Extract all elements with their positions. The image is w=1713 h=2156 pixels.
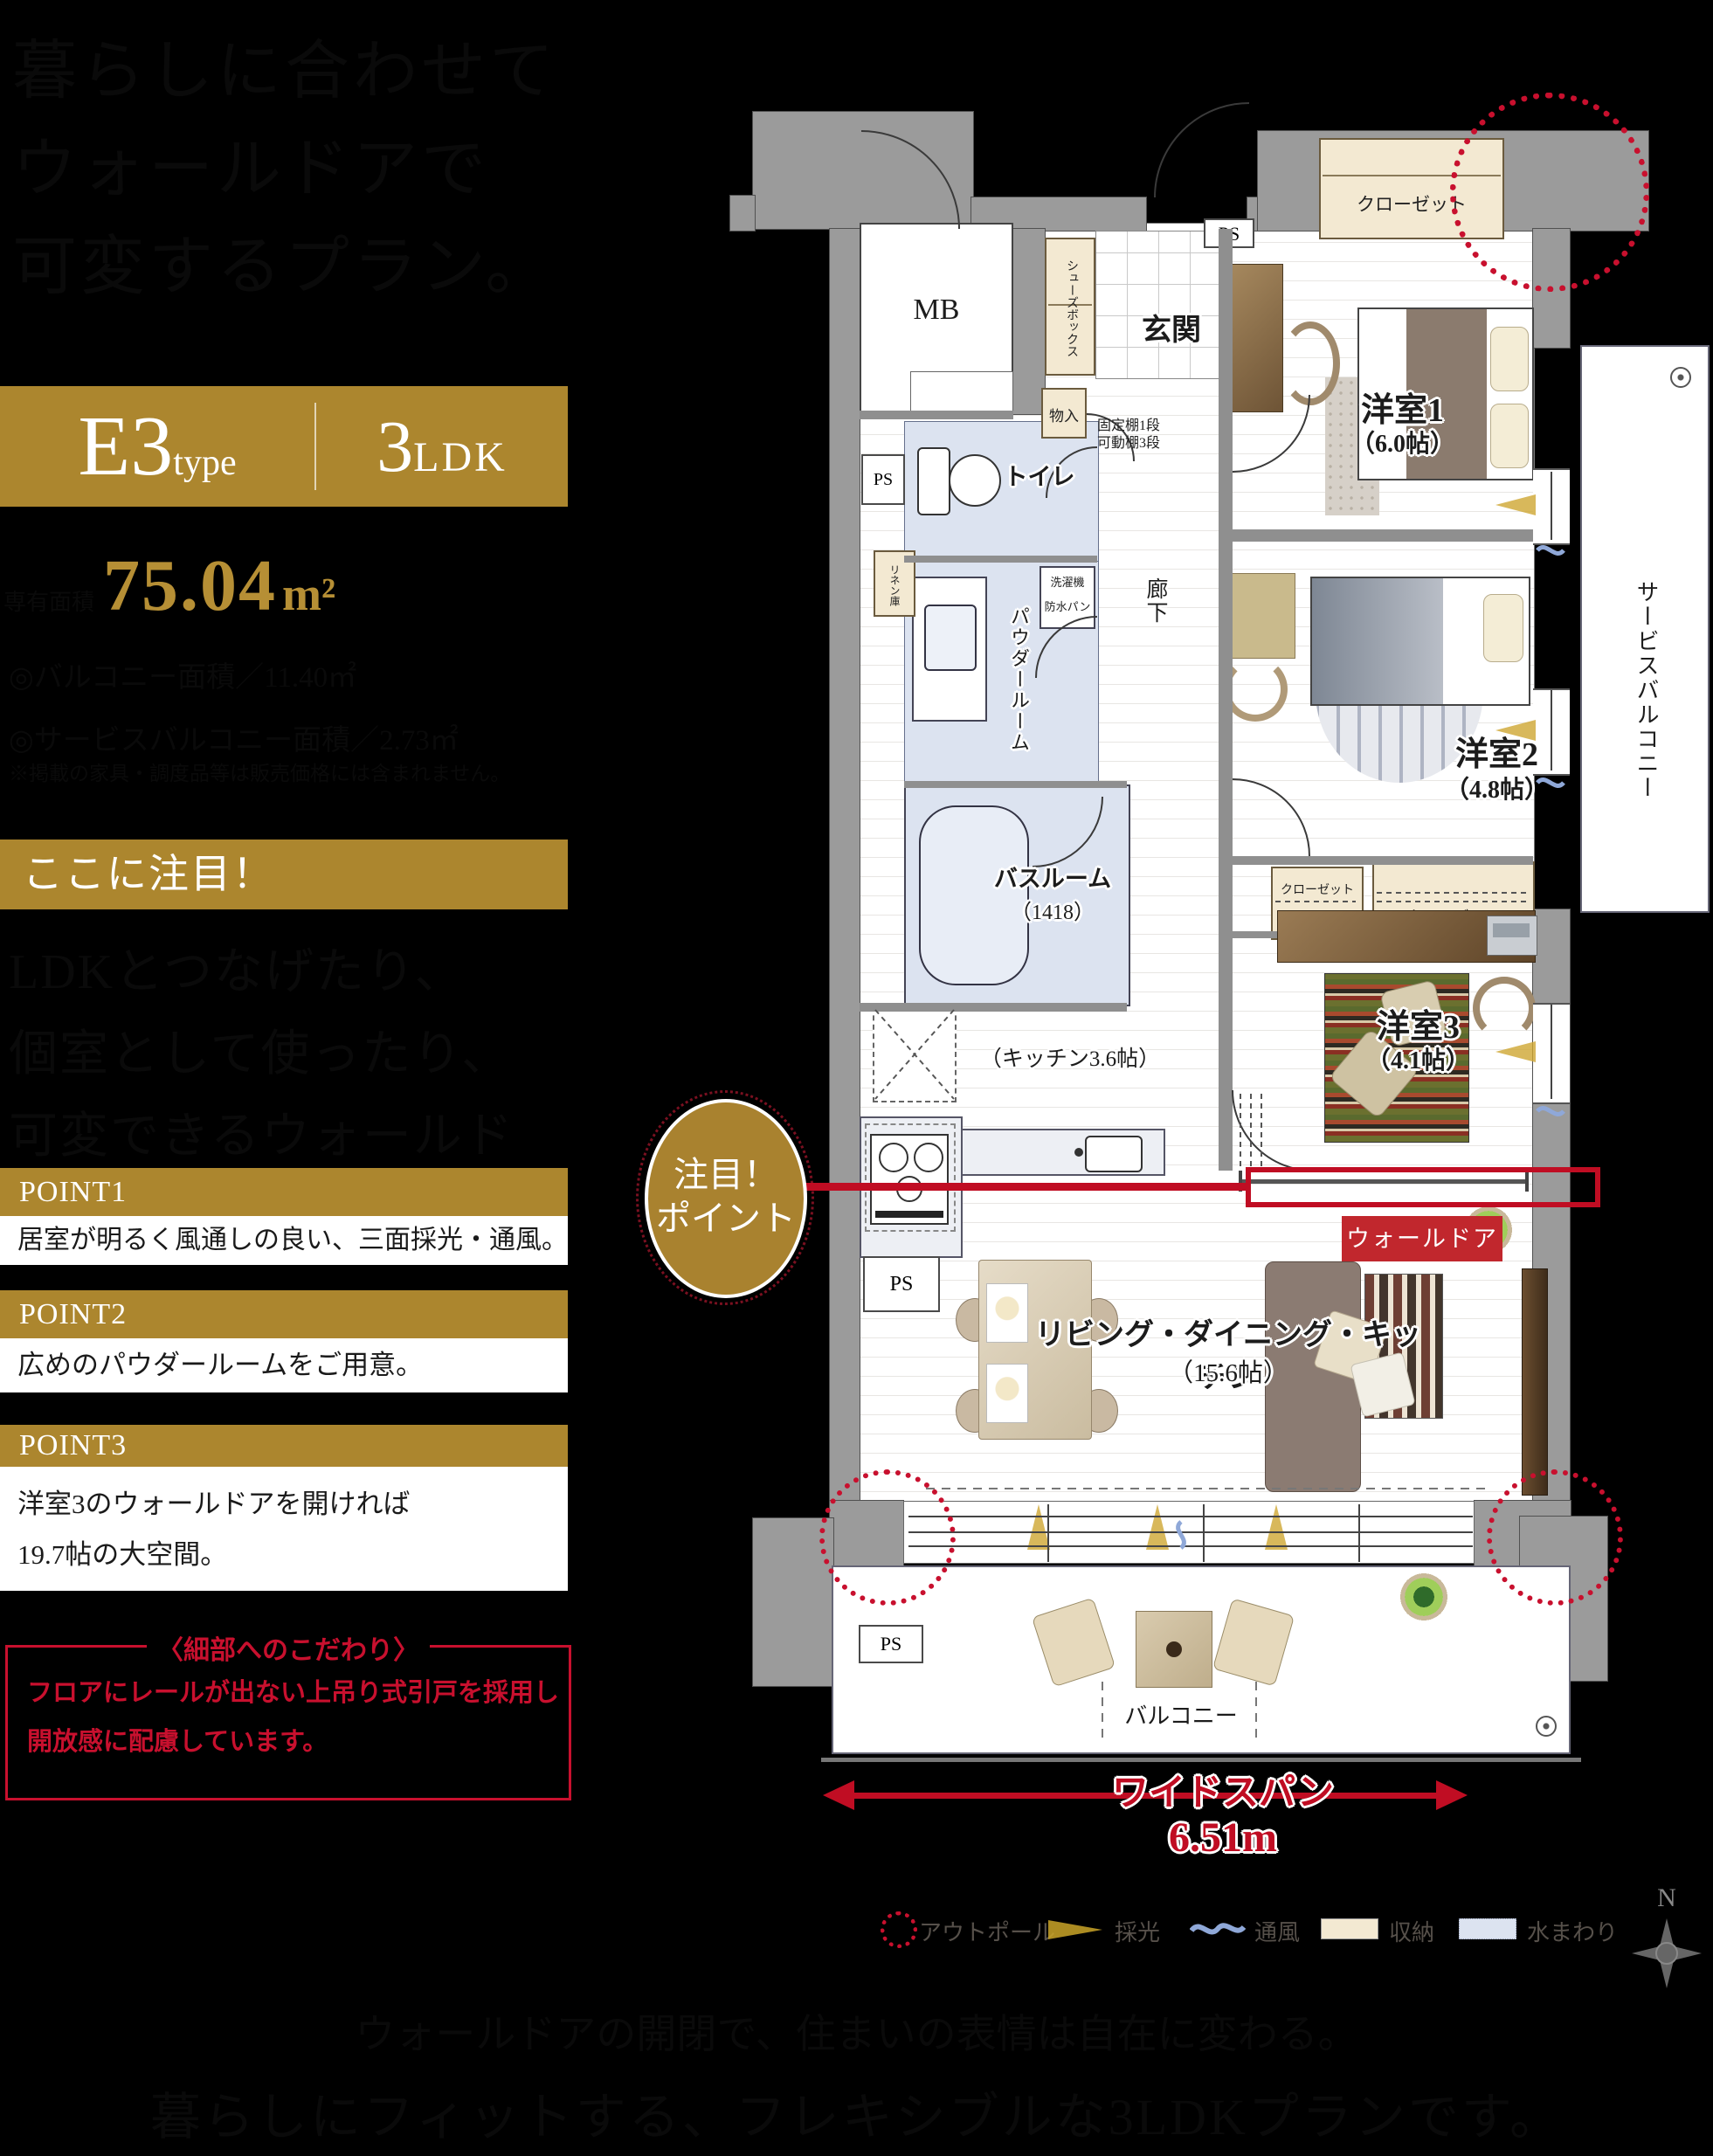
wall-segment <box>860 411 1013 419</box>
label-bath: バスルーム <box>987 860 1118 894</box>
airflow-icon <box>1190 1917 1246 1941</box>
label-powder: パウダールーム <box>1005 587 1033 772</box>
daylight-icon <box>1265 1504 1288 1550</box>
pillow-icon <box>1490 404 1529 468</box>
window <box>1533 1003 1570 1104</box>
outpole-marker <box>1487 1469 1623 1606</box>
wall-segment <box>860 1003 1127 1012</box>
label-mb: MB <box>900 294 973 327</box>
shelf-note: 固定棚1段 可動棚3段 <box>1097 418 1202 453</box>
wall-door-highlight <box>1246 1167 1600 1207</box>
wall-segment <box>1233 529 1533 542</box>
widespan-label: ワイドスパン <box>1074 1763 1371 1816</box>
drain-icon <box>1536 1716 1557 1737</box>
legend-label: 採光 <box>1115 1915 1160 1947</box>
floorplan-flyer: 暮らしに合わせて ウォールドアで 可変するプラン。 E3type 3LDK 専有… <box>0 0 1713 2156</box>
floor-plan: MB 玄関 トイレ パウダールーム 洗濯機 防水パン バスルーム （1418） … <box>0 0 1713 2156</box>
outpole-marker <box>1450 93 1649 292</box>
room-genkan <box>1095 231 1225 379</box>
label-room2: 洋室2 <box>1429 727 1564 775</box>
label-hallway: 廊下 <box>1139 549 1171 653</box>
label-bath-size: （1418） <box>987 895 1118 925</box>
legend-label: アウトポール <box>919 1915 1055 1947</box>
pillow-icon <box>1490 327 1529 391</box>
wall-segment <box>904 556 1097 563</box>
pillow-icon <box>1483 594 1523 662</box>
attention-badge-line: 注目！ <box>648 1153 804 1197</box>
room1-chair <box>1281 321 1340 405</box>
attention-connector-line <box>797 1183 1247 1191</box>
tv-board <box>1522 1268 1548 1496</box>
label-room3: 洋室3 <box>1350 999 1486 1047</box>
wall-segment <box>1013 229 1045 414</box>
label-room2-size: （4.8帖） <box>1429 770 1564 805</box>
widespan-arrowhead <box>823 1780 854 1810</box>
widespan-arrowhead <box>1436 1780 1468 1810</box>
plant-icon <box>1399 1572 1448 1621</box>
daylight-icon <box>1027 1504 1050 1550</box>
laptop-icon <box>1487 916 1537 956</box>
wall-door-tag: ウォールドア <box>1342 1216 1502 1261</box>
label-toilet: トイレ <box>987 458 1092 492</box>
shoes-box: シューズボックス <box>1045 238 1095 376</box>
label-room1-size: （6.0帖） <box>1335 425 1470 460</box>
window-band <box>903 1501 1475 1564</box>
wall-segment <box>1219 229 1233 1171</box>
ps-box-left: PS <box>861 454 905 505</box>
storage-box: 物入 <box>1041 388 1087 439</box>
ps-box-balcony: PS <box>859 1625 923 1663</box>
balcony-edge <box>821 1758 1581 1762</box>
room2-chair <box>1223 657 1288 722</box>
washer-pan-box: 洗濯機 防水パン <box>1040 566 1095 629</box>
ps-box-kitchen: PS <box>863 1256 940 1312</box>
label-balcony: バルコニー <box>1122 1698 1240 1731</box>
legend-label: 通風 <box>1254 1915 1300 1947</box>
wall-segment <box>830 229 860 1501</box>
mb-inner-box <box>910 371 1013 412</box>
legend-label: 水まわり <box>1527 1915 1618 1947</box>
label-genkan: 玄関 <box>1115 306 1228 349</box>
compass-n-label: N <box>1627 1883 1707 1913</box>
label-room3-size: （4.1帖） <box>1350 1041 1486 1076</box>
outpole-icon <box>881 1911 917 1948</box>
widespan-value: 6.51m <box>1074 1814 1371 1862</box>
powder-mirror <box>924 605 977 671</box>
daylight-icon <box>1146 1504 1169 1550</box>
range-hood-dash <box>865 1123 956 1232</box>
attention-badge-line: ポイント <box>648 1197 804 1240</box>
wall-segment <box>730 196 755 231</box>
water-icon <box>1459 1918 1516 1939</box>
daylight-icon <box>1495 1041 1536 1062</box>
sink-icon <box>1085 1136 1143 1172</box>
room2-bed <box>1310 577 1530 706</box>
window <box>1533 468 1570 545</box>
drain-icon <box>1670 367 1691 388</box>
bottom-caption-line: ウォールドアの開閉で、住まいの表情は自在に変わる。 <box>0 2002 1713 2060</box>
label-ldk-size: （15.6帖） <box>1031 1352 1426 1389</box>
toilet-tank <box>917 447 950 515</box>
compass: N <box>1627 1883 1707 1999</box>
compass-rose-icon <box>1627 1913 1707 1994</box>
wall-segment <box>753 112 973 229</box>
storage-icon <box>1321 1918 1378 1939</box>
daylight-icon <box>1048 1920 1102 1939</box>
outpole-marker <box>819 1469 956 1606</box>
label-kitchen-size: （キッチン3.6帖） <box>961 1041 1179 1073</box>
bottom-caption-line: 暮らしにフィットする、フレキシブルな3LDKプランです。 <box>0 2076 1713 2149</box>
label-room1: 洋室1 <box>1335 383 1470 431</box>
daylight-icon <box>1495 494 1536 515</box>
legend-label: 収納 <box>1389 1915 1434 1947</box>
attention-badge: 注目！ ポイント <box>645 1099 807 1298</box>
wall-segment <box>904 781 1127 788</box>
wall-segment <box>1233 856 1533 865</box>
fridge-space <box>873 1006 957 1102</box>
label-service-balcony: サービスバルコニー <box>1630 559 1662 821</box>
balcony-table <box>1136 1611 1212 1688</box>
kitchen-island <box>961 1129 1165 1176</box>
